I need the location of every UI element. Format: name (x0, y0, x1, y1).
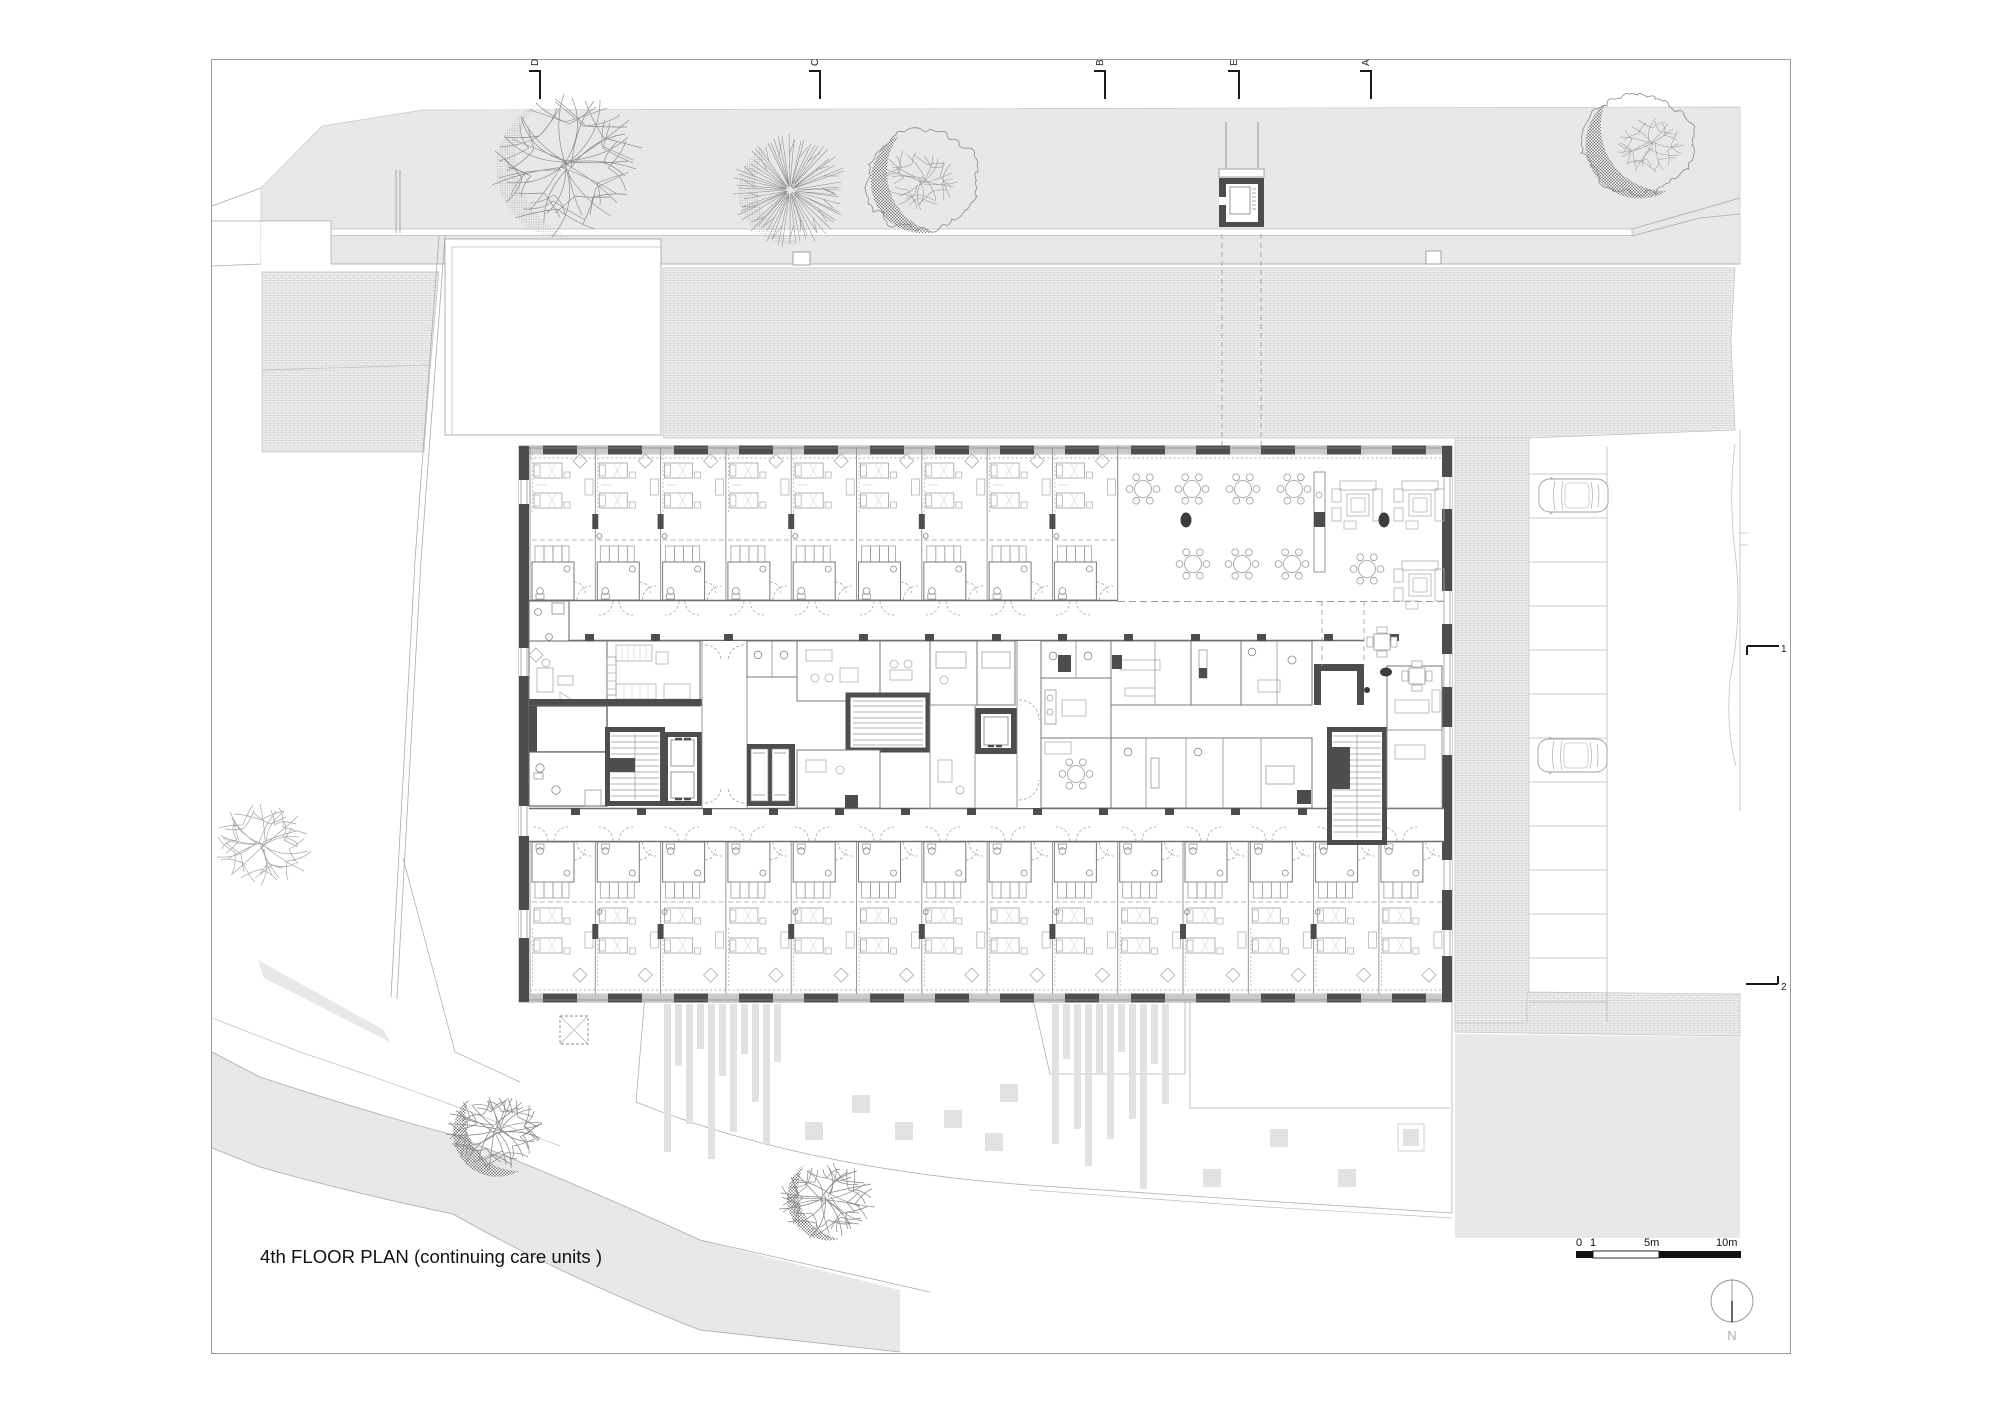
svg-text:B: B (1095, 59, 1106, 66)
svg-text:5m: 5m (1644, 1237, 1659, 1249)
svg-text:4th FLOOR PLAN (continuing car: 4th FLOOR PLAN (continuing care units ) (260, 1246, 602, 1267)
svg-text:D: D (530, 59, 541, 66)
svg-text:C: C (810, 59, 821, 66)
svg-text:2: 2 (1781, 982, 1787, 993)
svg-text:1: 1 (1590, 1237, 1596, 1249)
svg-text:0: 0 (1576, 1237, 1582, 1249)
svg-text:E: E (1229, 59, 1240, 66)
svg-text:A: A (1361, 59, 1372, 66)
svg-text:1: 1 (1781, 644, 1787, 655)
svg-text:10m: 10m (1716, 1237, 1737, 1249)
svg-text:N: N (1727, 1328, 1736, 1343)
